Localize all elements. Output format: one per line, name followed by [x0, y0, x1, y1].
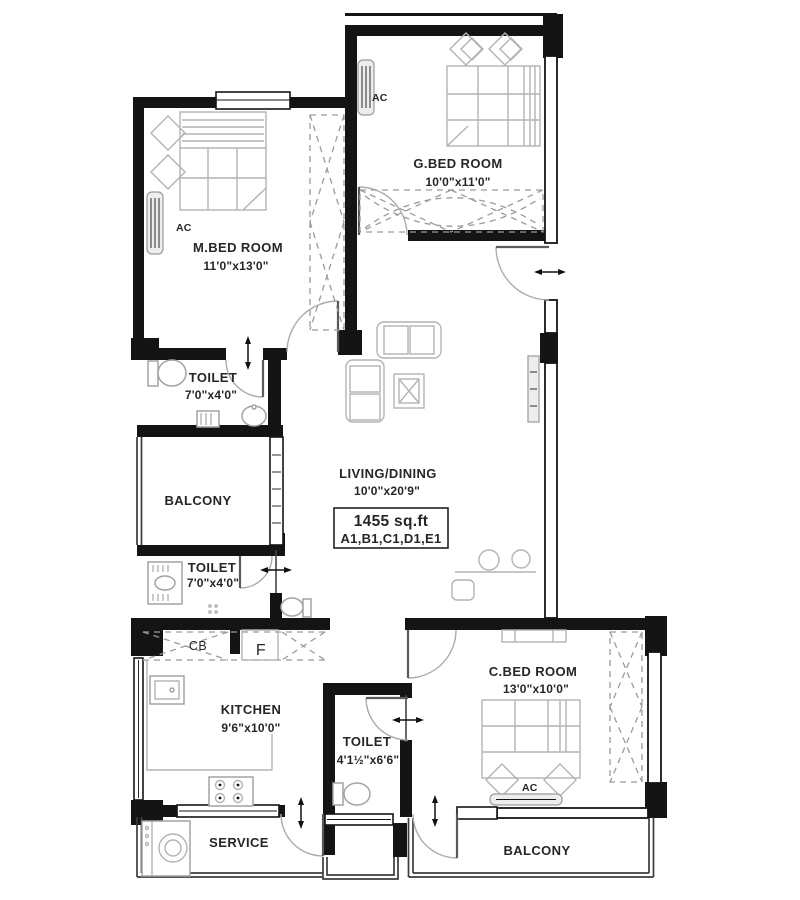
label-toilet-common-name: TOILET — [188, 560, 236, 575]
furniture-c-bed — [482, 630, 580, 805]
floor-plan-page: 1455 sq.ft A1,B1,C1,D1,E1 M.BED ROOM 11'… — [0, 0, 800, 900]
fixtures-toilet-c-bed — [333, 783, 370, 805]
label-g-bed-dims: 10'0"x11'0" — [425, 175, 490, 189]
fixtures-service — [142, 821, 190, 876]
walls-hollow — [497, 56, 661, 818]
wardrobe-m-bed — [310, 115, 344, 330]
label-fridge: F — [256, 642, 266, 659]
label-c-bed-name: C.BED ROOM — [489, 664, 578, 679]
label-toilet-master-dims: 7'0"x4'0" — [185, 388, 237, 402]
door-kitchen-service — [281, 814, 323, 856]
label-ac-c-bed: AC — [522, 782, 538, 794]
label-kitchen-name: KITCHEN — [221, 702, 282, 717]
label-toilet-master-name: TOILET — [189, 370, 237, 385]
label-ac-g-bed: AC — [372, 92, 388, 104]
label-kitchen-dims: 9'6"x10'0" — [221, 721, 280, 735]
label-service: SERVICE — [209, 835, 269, 850]
floor-plan-drawing: 1455 sq.ft A1,B1,C1,D1,E1 M.BED ROOM 11'… — [0, 0, 800, 900]
furniture-living — [346, 322, 539, 600]
label-balcony-south: BALCONY — [503, 843, 570, 858]
label-cb: CB — [189, 639, 207, 653]
wardrobe-c-bed — [610, 632, 642, 782]
label-m-bed-dims: 11'0"x13'0" — [203, 259, 268, 273]
label-living-dims: 10'0"x20'9" — [354, 484, 420, 498]
door-m-bed — [287, 301, 338, 352]
walls-solid — [133, 13, 665, 857]
total-area-text: 1455 sq.ft — [354, 513, 429, 530]
windows — [134, 92, 497, 825]
label-ac-m-bed: AC — [176, 222, 192, 234]
label-balcony-west: BALCONY — [164, 493, 231, 508]
unit-codes-text: A1,B1,C1,D1,E1 — [340, 531, 441, 546]
label-c-bed-dims: 13'0"x10'0" — [503, 682, 569, 696]
label-toilet-c-bed-name: TOILET — [343, 734, 391, 749]
furniture-g-bed — [358, 33, 540, 146]
door-c-bed — [408, 630, 456, 678]
label-living-name: LIVING/DINING — [339, 466, 437, 481]
label-toilet-c-bed-dims: 4'1½"x6'6" — [337, 753, 399, 767]
furniture-m-bed — [147, 112, 266, 254]
label-toilet-common-dims: 7'0"x4'0" — [187, 576, 239, 590]
label-g-bed-name: G.BED ROOM — [413, 156, 502, 171]
area-summary-box: 1455 sq.ft A1,B1,C1,D1,E1 — [334, 508, 448, 548]
label-m-bed-name: M.BED ROOM — [193, 240, 283, 255]
